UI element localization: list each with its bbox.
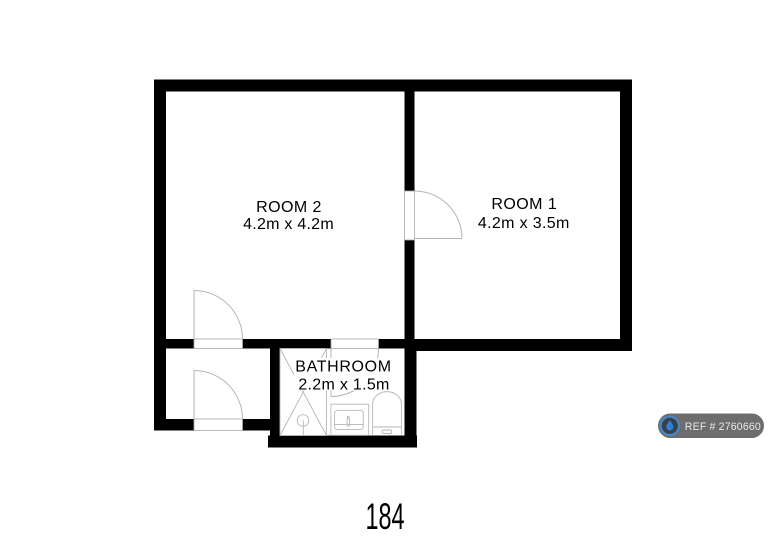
svg-text:ROOM 2: ROOM 2: [256, 199, 322, 216]
svg-text:2.2m x 1.5m: 2.2m x 1.5m: [298, 377, 389, 394]
svg-text:4.2m x 4.2m: 4.2m x 4.2m: [243, 216, 334, 233]
svg-text:184: 184: [365, 495, 404, 537]
svg-text:ROOM 1: ROOM 1: [491, 196, 557, 213]
svg-text:BATHROOM: BATHROOM: [295, 359, 391, 376]
svg-text:REF # 2760660: REF # 2760660: [685, 421, 761, 433]
svg-text:4.2m x 3.5m: 4.2m x 3.5m: [478, 215, 570, 232]
